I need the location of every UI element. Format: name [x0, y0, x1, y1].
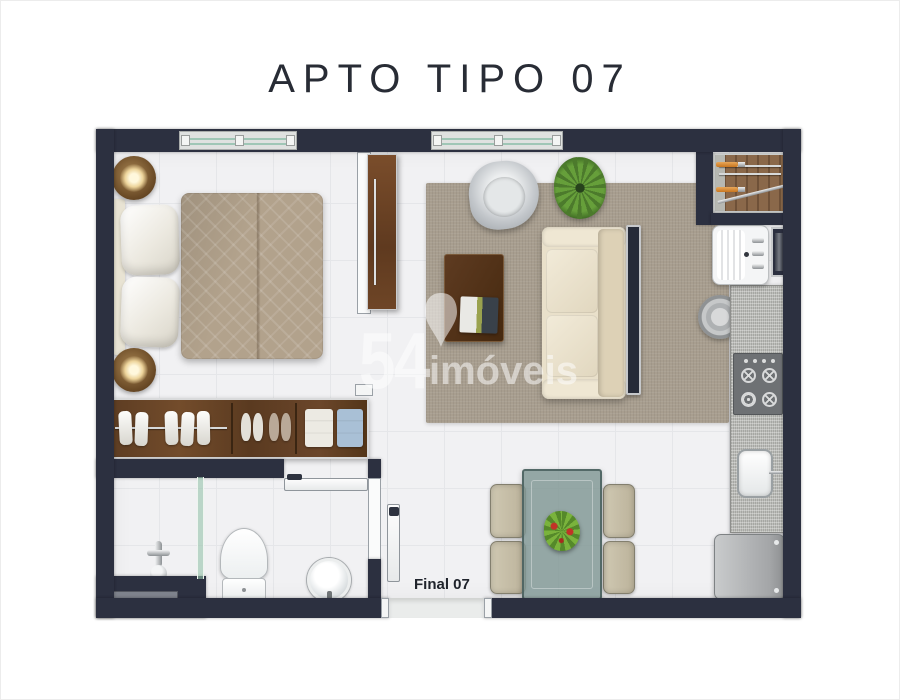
wardrobe	[105, 398, 369, 459]
pillow-icon	[120, 204, 180, 276]
wardrobe-divider	[295, 403, 297, 454]
shoes-icon	[253, 413, 263, 441]
bathroom-top-wall	[368, 459, 381, 478]
hanging-clothes-icon	[134, 412, 148, 446]
bottom-wall	[484, 598, 801, 618]
cooktop-knobs	[744, 359, 748, 363]
tap-knob-icon	[752, 251, 764, 256]
sofa	[542, 227, 626, 399]
wall-cap	[355, 384, 373, 396]
laundry-tank	[712, 225, 769, 285]
page-title: APTO TIPO 07	[1, 57, 899, 102]
faucet-icon	[744, 252, 749, 257]
window-mullion	[494, 135, 503, 146]
living-window	[431, 131, 563, 150]
dining-chair	[490, 484, 526, 538]
door-handle-icon	[389, 507, 399, 516]
hanging-clothes-icon	[180, 412, 195, 447]
floor-plan: Final 07 54 imóveis	[96, 129, 801, 618]
bathroom-side-wall	[368, 478, 381, 561]
entry-door	[387, 504, 400, 582]
window-mullion	[181, 135, 190, 146]
tap-knob-icon	[752, 264, 764, 269]
hanging-clothes-icon	[197, 411, 211, 445]
shower-glass-partition	[197, 477, 204, 579]
magazine-icon	[459, 296, 498, 333]
shoes-icon	[281, 413, 291, 441]
sofa-cushion	[546, 315, 598, 377]
window-mullion	[286, 135, 295, 146]
centerpiece-plant-icon	[544, 511, 580, 551]
folded-clothes-icon	[337, 409, 363, 447]
sofa-cushion	[546, 249, 598, 313]
burner-icon	[762, 368, 777, 383]
bathroom-top-wall	[96, 459, 284, 478]
bottom-wall	[96, 598, 389, 618]
dining-chair	[603, 541, 635, 594]
sofa-back	[598, 229, 624, 397]
window-mullion	[552, 135, 561, 146]
drying-line	[719, 173, 781, 175]
laundry-wall	[711, 213, 787, 225]
door-handle-icon	[287, 474, 302, 480]
burner-icon	[741, 392, 756, 407]
console-panel	[626, 225, 641, 395]
door-jamb	[484, 598, 492, 618]
pillow-icon	[120, 276, 180, 348]
double-bed	[181, 193, 323, 359]
shoes-icon	[269, 413, 279, 441]
door-jamb	[381, 598, 389, 618]
window-mullion	[433, 135, 442, 146]
vanity-basin-icon	[307, 558, 351, 602]
squeegee-icon	[716, 162, 738, 167]
burner-icon	[741, 368, 756, 383]
hanging-clothes-icon	[118, 411, 133, 446]
right-wall	[783, 129, 801, 618]
kitchen-sink-icon	[737, 449, 773, 498]
entry-unit-label: Final 07	[414, 576, 504, 593]
sliding-door	[367, 154, 397, 310]
potted-plant-icon	[554, 157, 606, 219]
refrigerator	[714, 534, 785, 600]
bathroom-door	[284, 478, 368, 491]
shower-arm	[147, 550, 170, 556]
bedroom-window	[179, 131, 297, 150]
left-wall	[96, 129, 114, 618]
squeegee-icon	[716, 187, 738, 192]
shoes-icon	[241, 413, 251, 441]
dining-chair	[603, 484, 635, 538]
window-mullion	[235, 135, 244, 146]
nightstand-lamp-icon	[112, 348, 156, 392]
folded-clothes-icon	[305, 409, 333, 447]
bathroom-side-wall	[368, 559, 381, 601]
tap-knob-icon	[752, 238, 764, 243]
burner-icon	[762, 392, 777, 407]
wardrobe-divider	[231, 403, 233, 454]
floor-plan-page: APTO TIPO 07	[0, 0, 900, 700]
hanging-clothes-icon	[164, 411, 178, 445]
drying-deck	[713, 153, 785, 213]
cooktop-icon	[733, 353, 783, 415]
entry-threshold	[389, 598, 484, 618]
nightstand-lamp-icon	[112, 156, 156, 200]
